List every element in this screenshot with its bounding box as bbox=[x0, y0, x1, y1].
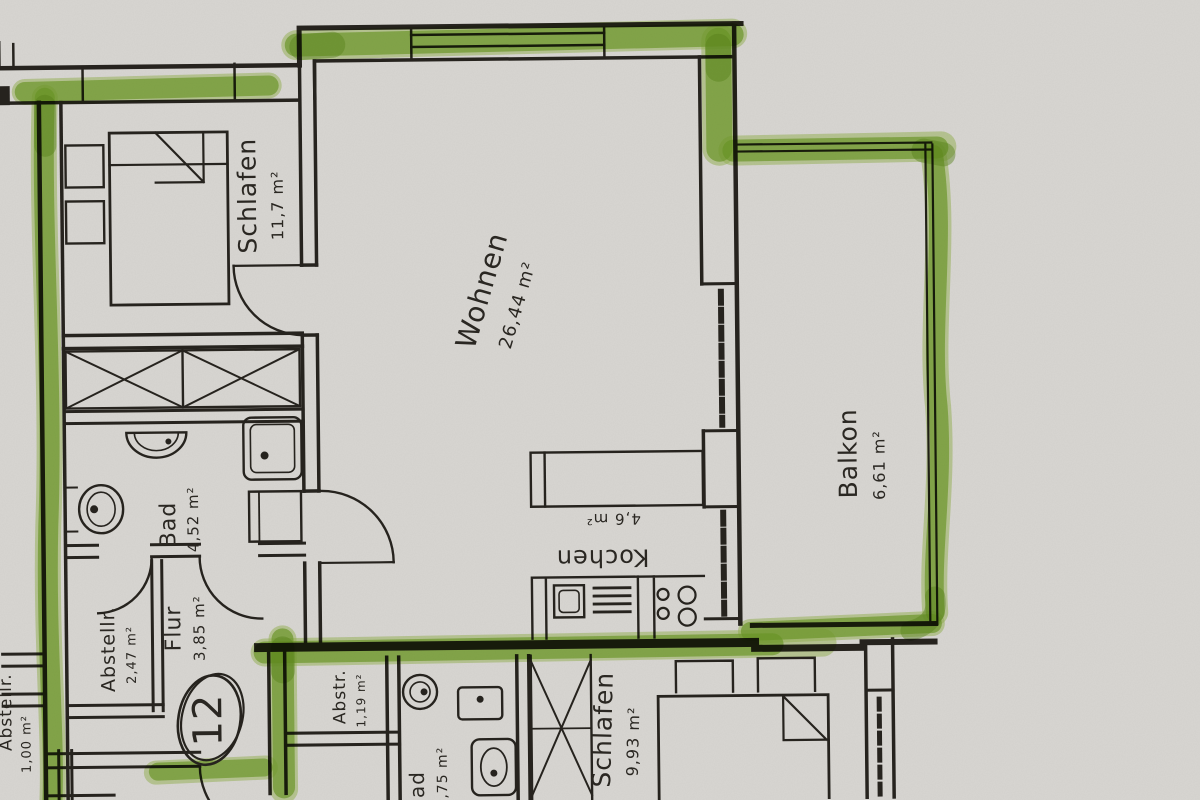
balkon-name: Balkon bbox=[833, 408, 863, 498]
abstellraum-name: Abstellr. bbox=[97, 606, 120, 692]
door-leaf-wohnen bbox=[322, 562, 394, 563]
neighbor-schlafen-area: 9,93 m² bbox=[623, 706, 644, 776]
floor-plan-svg: Schlafen 11,7 m² Wohnen 26,44 m² Balkon … bbox=[0, 0, 1200, 800]
edge-abstell-name: Abstellr. bbox=[0, 673, 17, 751]
kochen-area: 4,6 m² bbox=[586, 510, 641, 529]
schlafen-name: Schlafen bbox=[232, 138, 262, 254]
bad-area: 4,52 m² bbox=[184, 486, 203, 552]
flur-area: 3,85 m² bbox=[190, 595, 209, 661]
neighbor-schlafen-name: Schlafen bbox=[587, 671, 619, 787]
neighbor-bad-name: Bad bbox=[405, 771, 429, 800]
edge-abstell-area: 1,00 m² bbox=[19, 715, 35, 773]
room-label-neighbor-abstell: Abstr. 1,19 m² bbox=[330, 669, 369, 728]
schlafen-area: 11,7 m² bbox=[268, 170, 288, 240]
floor-plan-photo: Schlafen 11,7 m² Wohnen 26,44 m² Balkon … bbox=[0, 0, 1200, 800]
kochen-name: Kochen bbox=[556, 543, 650, 572]
neighbor-window-glazing bbox=[879, 699, 880, 797]
flur-name: Flur bbox=[161, 605, 186, 651]
neighbor-abstell-area: 1,19 m² bbox=[354, 673, 369, 727]
door-leaf-schlafen bbox=[234, 265, 302, 266]
apartment-number: 12 bbox=[185, 693, 232, 746]
balkon-area: 6,61 m² bbox=[869, 430, 889, 500]
neighbor-abstell-name: Abstr. bbox=[330, 669, 351, 724]
neighbor-bad-area: 4,75 m² bbox=[435, 747, 452, 800]
bad-name: Bad bbox=[156, 502, 181, 548]
abstellraum-area: 2,47 m² bbox=[124, 626, 140, 684]
